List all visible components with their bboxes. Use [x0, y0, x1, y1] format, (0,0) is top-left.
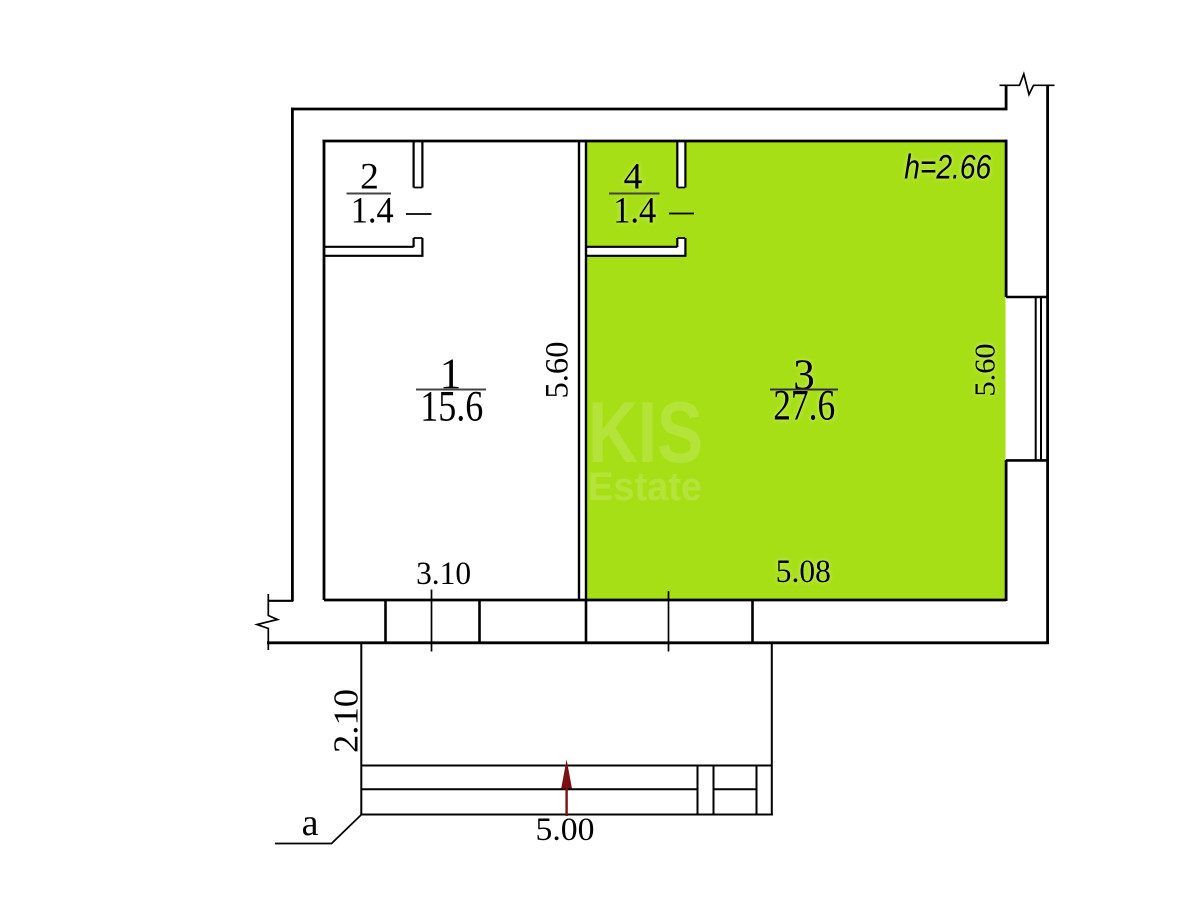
svg-text:h=2.66: h=2.66 [904, 149, 991, 187]
svg-text:3.10: 3.10 [416, 556, 471, 592]
svg-text:a: a [302, 802, 319, 844]
svg-text:5.60: 5.60 [539, 342, 575, 399]
svg-text:5.00: 5.00 [536, 812, 595, 848]
svg-text:5.08: 5.08 [776, 554, 831, 590]
svg-text:1.4: 1.4 [613, 190, 656, 231]
svg-text:2.10: 2.10 [326, 689, 365, 753]
svg-text:15.6: 15.6 [420, 384, 483, 431]
svg-text:Estate: Estate [588, 465, 702, 509]
svg-text:5.60: 5.60 [970, 344, 1002, 397]
svg-text:1.4: 1.4 [351, 190, 394, 231]
